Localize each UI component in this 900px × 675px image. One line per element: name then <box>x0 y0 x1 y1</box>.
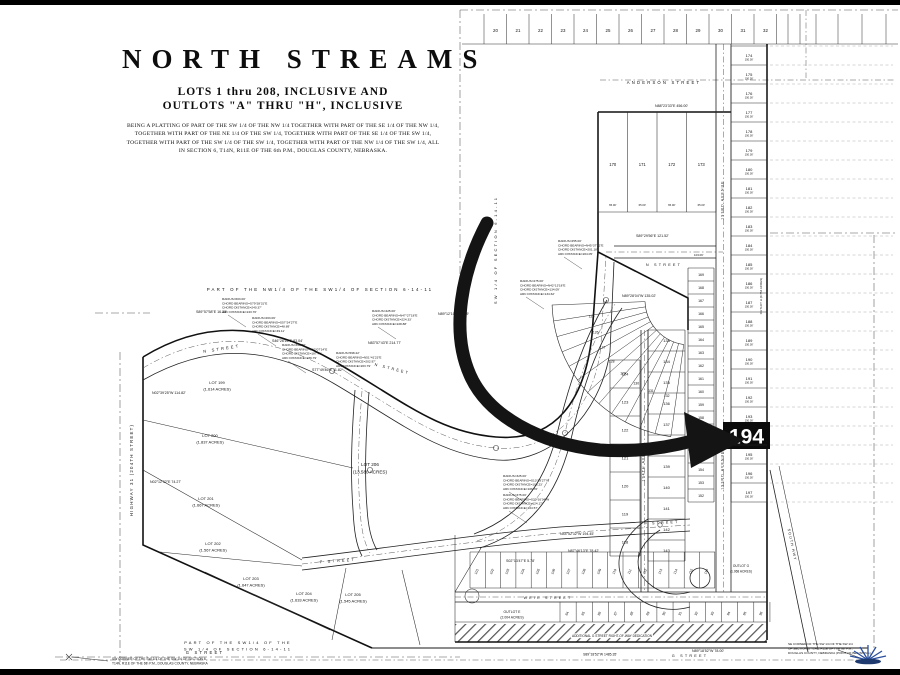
curve-note-line: ARC DISTANCE=106.70' <box>503 487 538 491</box>
lot-number: 26 <box>628 28 633 33</box>
lot-dim: 150.00' <box>745 228 754 232</box>
lot-number: 152 <box>698 494 704 498</box>
lot-number: 119 <box>622 512 629 517</box>
lot-number: 136 <box>663 401 670 406</box>
lot-number: 161 <box>698 377 704 381</box>
lot-number: 127 <box>600 345 606 349</box>
lot-number: 27 <box>651 28 656 33</box>
lot-number: 29 <box>696 28 701 33</box>
lot-number: 86 <box>597 611 602 616</box>
lot-number: 118 <box>622 540 629 545</box>
lot-line <box>378 327 396 339</box>
lot-number: 22 <box>538 28 543 33</box>
lot-number: 168 <box>698 286 704 290</box>
lot-number: 171 <box>639 162 647 167</box>
lot-number: 160 <box>698 390 704 394</box>
lot-number: 137 <box>663 422 670 427</box>
curve-note-line: ARC DISTANCE=228.88' <box>372 322 407 326</box>
lot-number: 92 <box>694 611 699 616</box>
title-block: NORTH STREAMS LOTS 1 thru 208, INCLUSIVE… <box>122 44 444 155</box>
lot-dim: 150.00' <box>745 494 754 498</box>
lot-number: 190 <box>746 357 753 362</box>
svg-text:SW CORNER OF THE SW 1/4 OF THE: SW CORNER OF THE SW 1/4 OF THE SW 1/4 OF… <box>112 657 209 666</box>
lot-number: 96 <box>758 611 763 616</box>
lot-dim: 150.00' <box>745 95 754 99</box>
lot-number: 103 <box>504 568 510 575</box>
lot-number: 109 <box>596 568 602 575</box>
bearing-label: N02°12'32"E 74.27' <box>150 480 181 484</box>
lot-number: 162 <box>698 364 704 368</box>
svg-text:LOT 199(1.614 ACRES): LOT 199(1.614 ACRES) <box>203 380 231 392</box>
lot-number: 170 <box>609 162 617 167</box>
avenue-193rd <box>716 44 731 592</box>
dedication-note-bg: ADDITIONAL G STREET RIGHT-OF-WAY DEDICAT… <box>572 634 653 638</box>
lot-number: 183 <box>746 224 753 229</box>
lot-number: 84 <box>565 611 570 616</box>
lot-number: 116 <box>703 568 709 575</box>
lot-number: 31 <box>741 28 746 33</box>
lot-number: 65.00' <box>698 203 706 207</box>
svg-text:OUTLOT G(1.068 ACRES): OUTLOT G(1.068 ACRES) <box>730 564 752 574</box>
lot-number: 104 <box>520 568 526 575</box>
lot-number: 140 <box>663 485 670 490</box>
dedication-hatch-strip <box>455 624 767 642</box>
lot-dim: 150.00' <box>745 133 754 137</box>
lot-number: 105 <box>535 568 541 575</box>
lot-number: 174 <box>746 53 753 58</box>
lot-number: 20 <box>493 28 498 33</box>
lot-line <box>228 315 246 327</box>
lot-dim: 150.00' <box>745 361 754 365</box>
lot-number: 128 <box>609 359 615 363</box>
lot-dim: 150.00' <box>745 190 754 194</box>
bearing-label: S02°13'47"E 5.78' <box>506 559 535 563</box>
lot-number: 94 <box>726 611 731 616</box>
lot-number: 24 <box>583 28 588 33</box>
lot-number: 164 <box>698 338 704 342</box>
curve-note-line: ARC DISTANCE=124.57' <box>503 506 538 510</box>
bearing-label: N89°18'52"W 78.00' <box>692 649 724 653</box>
lot-number: 179 <box>746 148 753 153</box>
plat-title: NORTH STREAMS <box>122 44 444 75</box>
lot-number: 114 <box>673 568 679 575</box>
lot-dim: 150.00' <box>745 76 754 80</box>
lot-number: 120 <box>622 484 629 489</box>
lot-dim: 150.00' <box>745 285 754 289</box>
lot-number: 101 <box>474 568 480 575</box>
anderson-dim: 103.06' <box>694 253 704 257</box>
lot-number: 129 <box>620 371 626 375</box>
lot-number: 113 <box>657 568 663 575</box>
lot-number: 108 <box>581 568 587 575</box>
svg-text:LOT 202(1.567 ACRES): LOT 202(1.567 ACRES) <box>199 541 227 553</box>
lot-line <box>288 361 306 373</box>
lot-number: 159 <box>698 403 704 407</box>
lot-number: 165 <box>698 325 704 329</box>
lot-number: 173 <box>698 162 706 167</box>
lot-number: 178 <box>746 129 753 134</box>
lot-number: 172 <box>668 162 676 167</box>
lot-line <box>552 302 645 305</box>
lot-number: 126 <box>593 330 599 334</box>
lot-number: 28 <box>673 28 678 33</box>
curve-note-line: ARC DISTANCE=243.70' <box>222 310 257 314</box>
lot-number: 153 <box>698 481 704 485</box>
lot-number: 65.00' <box>639 203 647 207</box>
lot-number: 25 <box>606 28 611 33</box>
lot-dim: 150.00' <box>745 380 754 384</box>
lot-number: 65.00' <box>609 203 617 207</box>
lot-number: 184 <box>746 243 753 248</box>
bearing-label: N88°23'33"E 456.00' <box>655 104 688 108</box>
curve-note-line: ARC DISTANCE=204.05' <box>558 252 593 256</box>
lot-line <box>588 330 657 392</box>
lot-dim: 150.00' <box>745 209 754 213</box>
lot-number: 90 <box>661 611 666 616</box>
lot-number: 21 <box>516 28 521 33</box>
section-label-sw-line1: PART OF THE SW1/4 OF THE <box>184 640 292 645</box>
weir-street-label: WEIR STREET <box>524 596 573 600</box>
lot-number: 169 <box>698 273 704 277</box>
lot-number: 141 <box>663 506 670 511</box>
lot-number: 176 <box>746 91 753 96</box>
lot-number: 111 <box>627 568 633 574</box>
lot-number: 196 <box>746 471 753 476</box>
plat-subtitle-line1: LOTS 1 thru 208, INCLUSIVE AND <box>122 85 444 99</box>
avenue-193rd-label-lower: 193RD AVENUE <box>721 450 725 489</box>
section-label-west-vertical: SW 1/4 OF SECTION 6-14-11 <box>493 196 498 304</box>
lot-number: 177 <box>746 110 753 115</box>
bearing-label: N87°46'13"E 78.42' <box>568 549 599 553</box>
lot-line <box>509 511 527 523</box>
lot-line <box>564 257 582 269</box>
lot-number: 89 <box>645 611 650 616</box>
g-street-dimension: S89°18'52"W 1485.35' <box>583 653 617 657</box>
curve-note-line: ARC DISTANCE=189.79' <box>282 356 317 360</box>
lot-number: 192 <box>746 395 753 400</box>
lot-number: 106 <box>550 568 556 575</box>
big-lot-dividers <box>143 420 481 645</box>
lot-number: 187 <box>746 300 753 305</box>
svg-text:LOT 200(1.837 ACRES): LOT 200(1.837 ACRES) <box>196 433 224 445</box>
lot-number: 130 <box>633 381 639 385</box>
p-street <box>302 519 690 570</box>
lot-number: 115 <box>688 568 694 575</box>
plat-boundary-northeast <box>598 44 767 640</box>
bearing-label: S89°29'56"E 121.52' <box>636 234 669 238</box>
lot-number: 189 <box>746 338 753 343</box>
lot-line <box>655 344 679 434</box>
lot-number: 193 <box>746 414 753 419</box>
lot-dim: 150.00' <box>745 266 754 270</box>
lot-number: 110 <box>611 568 617 575</box>
lot-number: 154 <box>698 468 704 472</box>
curve-note-line: ARC DISTANCE=203.79' <box>336 364 371 368</box>
bearing-label: N44°52'32"W 194.45' <box>560 532 594 536</box>
bearing-label: N83°57'43"E 214.77' <box>368 341 401 345</box>
lot-number: 139 <box>663 464 670 469</box>
plat-legal-description: BEING A PLATTING OF PART OF THE SW 1/4 O… <box>124 122 442 156</box>
bearing-label: S77°49'46"E 11.82' <box>312 368 343 372</box>
lot-number: 142 <box>663 527 670 532</box>
lot-dim: 150.00' <box>745 323 754 327</box>
curve-note-line: ARC DISTANCE=134.62' <box>520 292 555 296</box>
lot-line <box>554 307 646 321</box>
lot-number: 123 <box>622 400 629 405</box>
anderson-street-label: ANDERSON STREET <box>627 80 701 85</box>
lot-number: 95 <box>742 611 747 616</box>
lot-dim: 150.00' <box>745 456 754 460</box>
svg-text:LOT 203(1.647 ACRES): LOT 203(1.647 ACRES) <box>237 576 265 588</box>
lot-number: 88 <box>629 611 634 616</box>
lot-number: 191 <box>746 376 753 381</box>
lot-number: 30 <box>718 28 723 33</box>
svg-text:OUTLOT E(2.004 ACRES): OUTLOT E(2.004 ACRES) <box>500 610 523 620</box>
curve-note-line: ARC DISTANCE=49.11' <box>252 329 285 333</box>
lot-dim: 150.00' <box>745 399 754 403</box>
lot-dim: 150.00' <box>745 171 754 175</box>
svg-text:OUTLOT H (0.754 ACRES): OUTLOT H (0.754 ACRES) <box>759 278 763 314</box>
lot-dim: 150.00' <box>745 57 754 61</box>
lot-number: 197 <box>746 490 753 495</box>
n-street-label-west: N STREET <box>203 343 241 354</box>
lot-number: 188 <box>746 319 753 324</box>
lot-number: 167 <box>698 299 704 303</box>
bearing-label: N02°39'25"W 114.82' <box>152 391 186 395</box>
lot-dim: 150.00' <box>745 475 754 479</box>
avenue-193rd-label-upper: 193RD AVENUE <box>721 180 725 219</box>
plat-subtitle-line2: OUTLOTS "A" THRU "H", INCLUSIVE <box>122 99 444 113</box>
lot-number: 182 <box>746 205 753 210</box>
lot-number: 125 <box>589 314 595 318</box>
loop-street-east-side <box>474 300 622 548</box>
svg-text:LOT 204(1.633 ACRES): LOT 204(1.633 ACRES) <box>290 591 318 603</box>
lot-dim: 150.00' <box>745 304 754 308</box>
section-label-sw-line2: SW 1/4 OF SECTION 6-14-11 <box>184 647 292 652</box>
lot-line <box>526 297 544 309</box>
lot-number: 175 <box>746 72 753 77</box>
plat-sheet: ANDERSON STREET N STREET 193RD AVENUE 19… <box>0 0 900 675</box>
lot-number: 185 <box>746 262 753 267</box>
n-street-label-ne: N STREET <box>646 263 682 267</box>
lot-number: 122 <box>622 428 629 433</box>
lot-number: 186 <box>746 281 753 286</box>
highway-31-label: HIGHWAY 31 (204TH STREET) <box>129 424 134 516</box>
lot-number: 181 <box>746 186 753 191</box>
svg-text:LOT 201(1.667 ACRES): LOT 201(1.667 ACRES) <box>192 496 220 508</box>
p-street-label-west: P STREET <box>320 558 356 565</box>
lot-number: 135 <box>663 380 670 385</box>
lot-number: 85 <box>581 611 586 616</box>
lot-number: 32 <box>763 28 768 33</box>
lot-number: 23 <box>561 28 566 33</box>
big-lot-labels: LOT 199(1.614 ACRES) LOT 200(1.837 ACRES… <box>192 380 387 604</box>
lot-dim: 150.00' <box>745 114 754 118</box>
lot-dim: 150.00' <box>745 418 754 422</box>
lot-number: 163 <box>698 351 704 355</box>
svg-text:LOT 205(1.545 ACRES): LOT 205(1.545 ACRES) <box>339 592 367 604</box>
svg-text:LOT 206(13.580 ACRES): LOT 206(13.580 ACRES) <box>353 462 387 475</box>
lot-line <box>671 345 684 437</box>
lot-dim: 150.00' <box>745 342 754 346</box>
n-street-label-curve: N STREET <box>374 363 410 376</box>
section-label-nw: PART OF THE NW1/4 OF THE SW1/4 OF SECTIO… <box>207 287 434 292</box>
lot-number: 132 <box>664 394 670 398</box>
lot-number: 65.00' <box>668 203 676 207</box>
lot-number: 195 <box>746 452 753 457</box>
bearing-label: N89°28'04"W 135.02' <box>622 294 656 298</box>
lot-number: 87 <box>613 611 618 616</box>
lot-number: 102 <box>489 568 495 575</box>
lot-number: 93 <box>710 611 715 616</box>
lot-number: 166 <box>698 312 704 316</box>
lot-number: 180 <box>746 167 753 172</box>
lot-number: 131 <box>648 389 654 393</box>
lot-number: 107 <box>566 568 572 575</box>
g-street-label-east: G STREET <box>672 654 709 658</box>
lot-dim: 150.00' <box>745 247 754 251</box>
lot-dim: 150.00' <box>745 152 754 156</box>
lot-number: 91 <box>678 611 683 616</box>
lot-number: 112 <box>642 568 648 575</box>
